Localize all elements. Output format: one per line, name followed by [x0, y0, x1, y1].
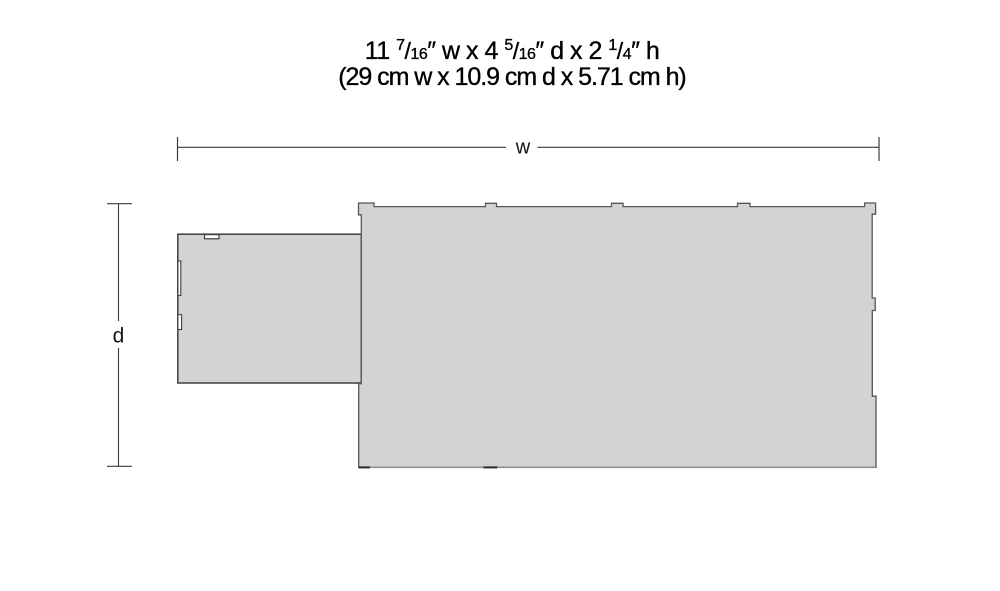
- svg-text:w: w: [515, 137, 531, 159]
- svg-text:d: d: [113, 325, 125, 348]
